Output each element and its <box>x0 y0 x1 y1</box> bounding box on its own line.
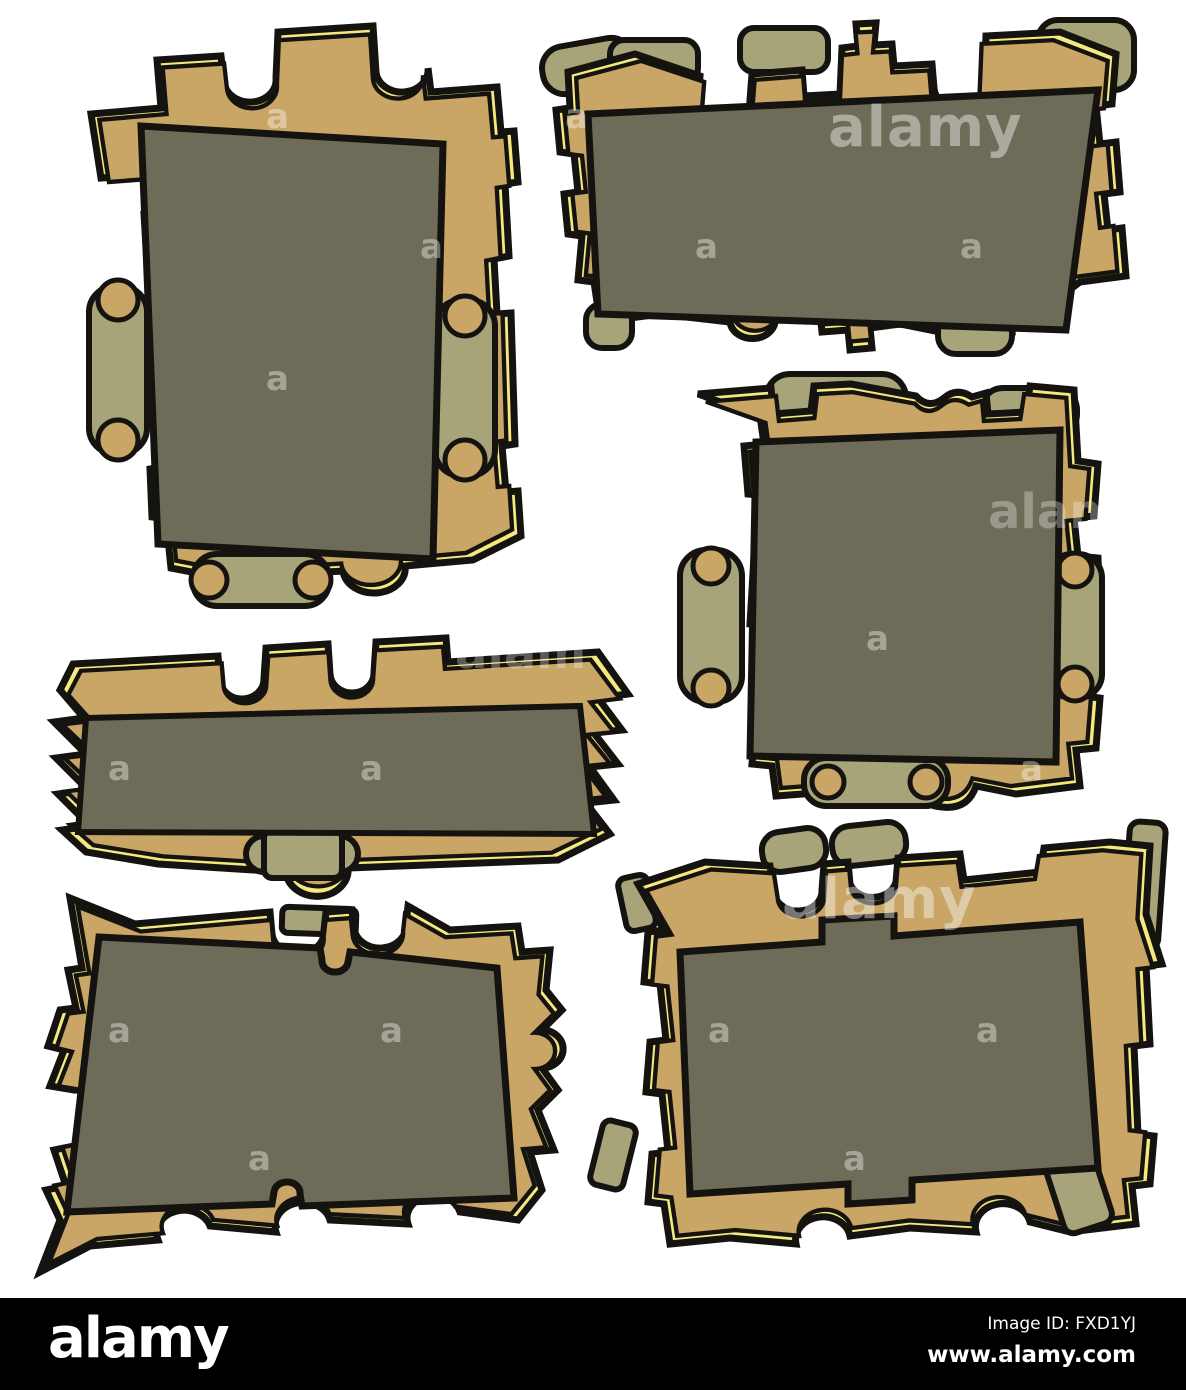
frame-panel <box>680 916 1098 1204</box>
bottom-scroll-curl <box>910 766 942 798</box>
frame-panel <box>141 126 443 559</box>
bottom-scroll-group <box>246 830 358 878</box>
alamy-footer-bar: alamy Image ID: FXD1YJ www.alamy.com <box>0 1298 1186 1390</box>
right-scroll-curl <box>1058 667 1092 701</box>
frame-banner-middle-left <box>38 634 650 882</box>
image-id-label: Image ID: FXD1YJ <box>987 1314 1136 1334</box>
alamy-logo: alamy <box>48 1306 228 1371</box>
stock-image-canvas: alamy alamy alam alam a a a a a a a a a … <box>0 0 1186 1390</box>
frame-panel <box>588 90 1098 330</box>
top-scroll-tab <box>740 28 828 72</box>
bottom-scroll-curl <box>295 562 331 598</box>
frame-panel <box>67 937 514 1212</box>
frame-panel <box>750 430 1060 762</box>
frame-body <box>89 26 521 606</box>
frame-portrait-top-left <box>73 14 525 618</box>
frame-panel <box>78 706 594 834</box>
frame-landscape-top-right <box>540 14 1140 362</box>
left-scroll-curl-top <box>98 280 138 320</box>
bottom-scroll-curl <box>191 562 227 598</box>
frame-square-middle-right <box>676 366 1106 818</box>
left-scroll-curl <box>693 670 729 706</box>
frame-large-bottom-right <box>610 824 1164 1264</box>
left-scroll-curl-bottom <box>98 420 138 460</box>
bottom-scroll <box>264 830 342 878</box>
bottom-scroll-curl <box>812 766 844 798</box>
right-scroll-curl <box>1058 553 1092 587</box>
right-scroll-curl-bottom <box>445 440 485 480</box>
alamy-website-link[interactable]: www.alamy.com <box>927 1342 1136 1368</box>
right-scroll-curl-top <box>445 296 485 336</box>
left-scroll-curl <box>693 548 729 584</box>
frame-tilted-bottom-left <box>30 890 596 1290</box>
